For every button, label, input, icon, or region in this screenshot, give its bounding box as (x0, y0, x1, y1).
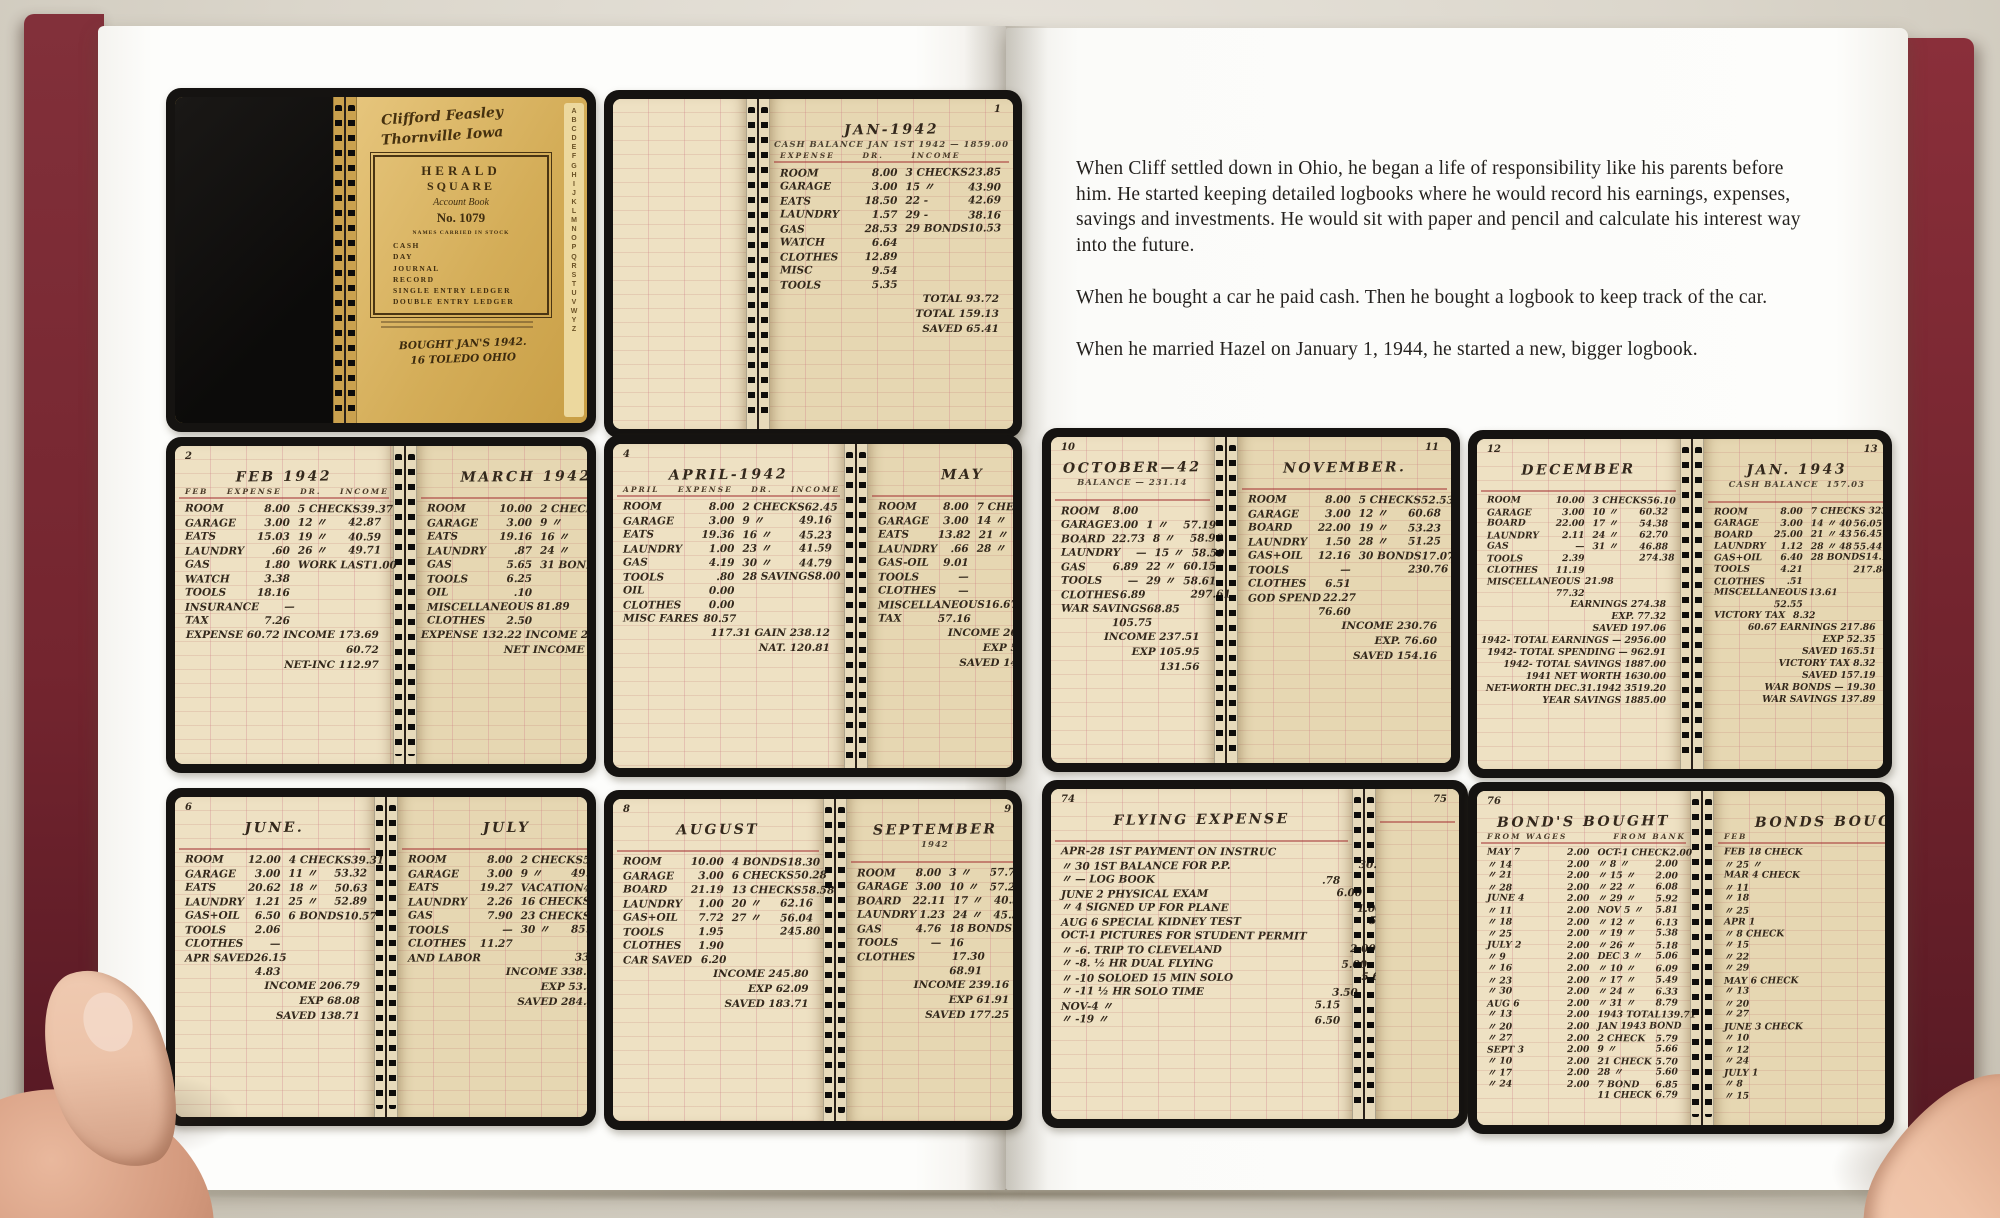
ledger-column-headers (1481, 480, 1676, 492)
ledger-cell-expense: — (938, 584, 969, 598)
ledger-cell-date (971, 612, 1013, 626)
ledger-title: MAY (872, 465, 1013, 486)
ledger-cell-expense: .10 (496, 586, 532, 600)
ledger-cell-label: VICTORY TAX (1708, 610, 1785, 622)
ledger-cell-income (989, 964, 1013, 978)
ledger-row: CLOTHES2.50 (421, 613, 587, 628)
ledger-row: ROOM8.003 〃57.72 (851, 865, 1013, 880)
ledger-cell-expense: 2.26 (477, 895, 513, 909)
ledger-cell-label (1241, 604, 1315, 618)
ledger-cell-expense: 2.00 (1555, 847, 1590, 859)
ledger-row: EATS19.27VACATION43.96 (402, 880, 587, 895)
ledger-cell-expense (1803, 1044, 1844, 1056)
ledger-row: 76.60 (1241, 604, 1447, 619)
ledger-row: GARAGE3.001 〃57.19 (1055, 518, 1210, 533)
ledger-cell-date: 20 〃 (724, 897, 780, 911)
ledger-page: 77BONDS BOUGHTFEB 6.95FEB 18 CHECK6.91〃 … (1714, 791, 1885, 1125)
ledger-row: CLOTHES0.00 (617, 597, 840, 612)
ledger-cell-expense: 6.51 (1315, 577, 1350, 591)
ledger-cell-date: 24 〃 (1584, 529, 1639, 541)
ledger-cell-label: TOOLS (774, 278, 858, 293)
ledger-cell-expense: 80.57 (698, 612, 736, 626)
page-number: 2 (185, 451, 192, 462)
ledger-row: EATS15.0319 〃40.59 (179, 529, 389, 544)
ledger-cell-label: LAUNDRY (872, 542, 938, 556)
ledger-row: BOARD25.0021 〃 4356.45 (1708, 529, 1883, 542)
ledger-cell-label: GAS+OIL (617, 910, 690, 924)
ledger-cell-expense: 3.00 (697, 514, 735, 528)
logbook-spread: 1JAN-1942CASH BALANCE JAN 1ST 1942 — 185… (613, 99, 1013, 429)
ledger-page: 10OCTOBER—42BALANCE — 231.14ROOM8.00GARA… (1051, 437, 1214, 763)
page-number: 11 (1425, 442, 1439, 453)
ledger-cell-expense: — (248, 937, 281, 951)
ledger-cell-date (1350, 563, 1407, 577)
ledger-row: BOARD22.0019 〃53.23 (1241, 520, 1447, 535)
ledger-cell-date: 23 〃 (734, 542, 796, 556)
ledger-cell-date (516, 951, 574, 965)
ledger-row: CLOTHES12.89 (774, 249, 1009, 264)
ledger-row: OIL0.00 (617, 583, 840, 598)
ledger-cell-expense: 2.11 (1551, 530, 1584, 542)
ledger-cell-date: 25 〃 (280, 895, 334, 909)
ledger-cell-expense: 6.64 (857, 236, 897, 250)
ledger-cell-expense (1803, 974, 1844, 986)
ledger-cell-expense: 9.01 (938, 556, 969, 570)
ledger-cell-income (1682, 1020, 1690, 1032)
ledger-cell-label: GARAGE (617, 869, 690, 883)
ledger-cell-date: OCT-1 CHECK (1589, 847, 1669, 859)
book-type-item: CASH (393, 240, 543, 251)
ledger-row: TOOLS2.39274.38 (1481, 552, 1676, 565)
ledger-title: JAN-1942 (774, 120, 1009, 141)
book-type-item: DAY (393, 251, 543, 262)
ledger-cell-label: TOOLS (872, 570, 938, 584)
ledger-cell-expense: 8.00 (1315, 493, 1350, 507)
ledger-cell-expense: 21.19 (689, 883, 723, 897)
book-type-list: CASHDAYJOURNALRECORDSINGLE ENTRY LEDGERD… (393, 240, 543, 308)
ledger-cell-date: 〃 19 〃 (1589, 928, 1646, 940)
ledger-cell-expense: 2.00 (1555, 998, 1590, 1010)
ledger-cell-date: 1 〃 (1138, 518, 1183, 532)
ledger-cell-income: 56.45 (1853, 529, 1883, 541)
ledger-cell-expense (1158, 999, 1208, 1013)
ledger-cell-expense: 25.00 (1773, 529, 1803, 541)
ledger-cell-expense: 4.76 (912, 922, 941, 936)
ledger-total-line: SAVED 165.51 (1708, 646, 1883, 658)
ledger-cell-income: 51.25 (1408, 534, 1449, 548)
ledger-cell-income: 8.79 (1647, 997, 1686, 1009)
ledger-cell-expense: .51 (1773, 576, 1803, 588)
ledger-cell-expense: 19.27 (477, 881, 513, 895)
ledger-cell-expense: 3.00 (912, 880, 941, 894)
ledger-cell-expense: 3.00 (1315, 507, 1350, 521)
ledger-row: 〃 162.00〃 10 〃6.09 (1481, 962, 1686, 975)
ledger-cell-expense: 3.00 (477, 867, 513, 881)
ledger-total-line: 131.56 (1055, 660, 1210, 675)
ledger-cell-expense: 3.00 (1773, 517, 1803, 529)
ledger-row: MAY 72.00OCT-1 CHECK2.00 (1481, 846, 1686, 859)
ledger-cell-expense: 3.00 (857, 180, 897, 194)
ledger-cell-date: 5 CHECKS (1350, 493, 1420, 507)
ledger-row: BOARD22.1117 〃40.53 (851, 893, 1013, 908)
spiral-binding-icon (746, 99, 770, 429)
ledger-cell-label: TOOLS (1708, 564, 1773, 576)
ledger-cell-label: GARAGE (402, 867, 477, 881)
illegible-fine-print (381, 321, 533, 323)
ledger-row: 〃 296.32 (1718, 962, 1885, 975)
ledger-cell-date: 10 〃 (941, 880, 990, 894)
ledger-cell-label: TOOLS (421, 572, 496, 586)
ledger-cell-date (1844, 1020, 1885, 1032)
ledger-cell-expense: 20.62 (248, 881, 281, 895)
ledger-cell-expense: 8.00 (1773, 506, 1803, 518)
ledger-cell-label: TOOLS (179, 923, 248, 937)
ledger-total-line: INCOME 239.16 (851, 978, 1013, 993)
ledger-cell-label: GARAGE (1708, 517, 1773, 529)
ledger-cell-date: 21 〃 (971, 528, 1013, 542)
ledger-cell-expense: 4.21 (1773, 564, 1803, 576)
ledger-cell-expense: 13.61 (1808, 587, 1838, 599)
ledger-cell-expense: 6.20 (692, 953, 726, 967)
ledger-cell-expense: 3.00 (938, 514, 969, 528)
ledger-cell-expense: 8.00 (477, 853, 513, 867)
ledger-title: JULY (402, 818, 587, 839)
illegible-fine-print (381, 326, 533, 328)
ledger-cell-date (1803, 575, 1854, 587)
ledger-cell-expense: 2.00 (1555, 870, 1590, 882)
ledger-row: EATS19.1616 〃63.35 (421, 529, 587, 544)
ledger-cell-label: 〃 16 (1481, 962, 1555, 974)
ledger-cell-expense: 11.27 (477, 937, 513, 951)
ledger-cell-income: 5.49 (1647, 974, 1686, 986)
ledger-cell-date (1584, 588, 1639, 600)
spiral-binding-icon (393, 446, 417, 764)
ledger-cell-label: MAY 7 (1481, 846, 1555, 858)
ledger-total-line: TOTAL 159.13 (774, 307, 1009, 322)
spiral-binding-icon (1680, 439, 1704, 769)
ledger-cell-expense: 2.00 (1555, 963, 1590, 975)
ledger-cell-label: JULY 2 (1481, 939, 1555, 951)
ledger-cell-date: 16 〃 (532, 530, 587, 544)
ledger-cell-date: 28 〃 (1350, 535, 1407, 549)
ledger-cell-label: BOARD (1481, 518, 1551, 530)
ledger-cell-date (1803, 564, 1854, 576)
ledger-cell-expense: 1.12 (1773, 541, 1803, 553)
ledger-page: 3MARCH 1942ROOM10.002 CHECKS55.70GARAGE3… (417, 446, 587, 764)
ledger-row: GOD SPEND22.27 (1241, 590, 1447, 605)
ledger-cell-label: TAX (872, 612, 938, 626)
ledger-cell-label: OIL (617, 583, 697, 597)
ledger-cell-expense: 8.00 (697, 500, 735, 514)
ledger-cell-expense: 22.73 (1112, 532, 1145, 546)
photo-ledger-jun-jul-1942: 6JUNE.ROOM12.004 CHECKS39.31GARAGE3.0011… (166, 788, 596, 1126)
ledger-cell-label (851, 964, 913, 978)
ledger-total-line: YEAR SAVINGS 1885.00 (1481, 695, 1676, 707)
ledger-cell-date: 2 CHECKS (513, 853, 583, 867)
ledger-cell-label: GAS (1481, 541, 1551, 553)
ledger-total-line: EXP 57.16 (872, 641, 1013, 656)
ledger-cell-expense: 8.00 (254, 502, 290, 516)
ledger-cell-label: LAUNDRY (1241, 535, 1315, 549)
ledger-cell-date (532, 586, 587, 600)
ledger-title: AUGUST (617, 820, 819, 841)
ledger-cell-date: 31 〃 (1584, 541, 1639, 553)
ledger-cell-expense (481, 951, 517, 965)
spiral-binding-icon (1352, 789, 1376, 1119)
ledger-cell-income: 5.66 (1647, 1043, 1686, 1055)
ledger-cell-expense: 2.00 (1555, 1079, 1590, 1091)
ledger-cell-label: MISC (774, 263, 858, 277)
ledger-row: ROOM8.007 CHECKS48.16 (872, 500, 1013, 515)
spiral-binding-icon (1690, 791, 1714, 1125)
ledger-row: TOOLS—230.76 (1241, 562, 1447, 577)
ledger-cell-expense: 8.00 (912, 866, 941, 880)
ledger-cell-label: APR-28 1ST PAYMENT ON INSTRUC (1055, 844, 1276, 859)
ledger-total-line: SAVED 144.89 (872, 656, 1013, 671)
ledger-cell-expense: 7.26 (254, 614, 290, 628)
ledger-cell-label: ROOM (1055, 504, 1112, 518)
ledger-cell-label: GARAGE (1241, 507, 1315, 521)
ledger-cell-income: 40.53 (994, 893, 1013, 907)
spiral-binding-icon (844, 444, 868, 768)
ledger-cell-expense: 1.00 (689, 897, 723, 911)
ledger-total-line: SAVED 284.84 (402, 995, 587, 1010)
ledger-cell-date: 11 〃 (280, 867, 334, 881)
ledger-cell-date: 13 CHECKS (724, 883, 802, 897)
ledger-cell-income: 274.38 (1639, 552, 1682, 564)
ledger-cell-expense: 26.15 (254, 951, 287, 965)
ledger-cell-expense: 6.40 (1773, 552, 1803, 564)
ledger-cell-date (1844, 997, 1885, 1009)
ledger-cell-date: 7 CHECKS (969, 500, 1013, 514)
ledger-row: LAUNDRY1.0020 〃62.16 (617, 896, 819, 911)
ledger-row: INSURANCE— (179, 599, 389, 614)
ledger-cell-label: ROOM (1708, 506, 1773, 518)
ledger-cell-date: 18 〃 (281, 881, 335, 895)
photo-ledger-apr-may-1942: 4APRIL-1942APRIL EXPENSE DR. INCOMEROOM8… (604, 435, 1022, 777)
ledger-cell-label: GOD SPEND (1241, 591, 1320, 605)
ledger-cell-date (1844, 870, 1885, 882)
ledger-cell-expense: 7.72 (689, 911, 723, 925)
ledger-row: GAS7.9023 CHECKS54.90 (402, 908, 587, 923)
ledger-cell-expense: .60 (254, 544, 290, 558)
photo-open-book: When Cliff settled down in Ohio, he bega… (0, 0, 2000, 1218)
ledger-title: FLYING EXPENSE (1055, 809, 1348, 831)
brand-name: HERALD (379, 163, 543, 179)
ledger-cell-income (348, 571, 389, 585)
ledger-cell-label: BOARD (1055, 532, 1112, 546)
photo-ledger-oct-nov-1942: 10OCTOBER—42BALANCE — 231.14ROOM8.00GARA… (1042, 428, 1460, 772)
ledger-cell-income: 2.00 (1647, 858, 1686, 870)
ledger-row: TOOLS6.25 (421, 571, 587, 586)
ledger-cell-label: SEPT 3 (1481, 1044, 1555, 1056)
ledger-cell-date (897, 264, 961, 278)
ledger-cell-expense: — (1315, 563, 1350, 577)
spiral-binding-icon (823, 799, 847, 1121)
ledger-cell-label: TAX (179, 613, 254, 627)
ledger-cell-expense: — (938, 570, 969, 584)
ledger-page: 6JUNE.ROOM12.004 CHECKS39.31GARAGE3.0011… (175, 797, 374, 1117)
ledger-cell-label: EATS (179, 881, 248, 895)
ledger-cell-label: ROOM (851, 866, 913, 880)
ledger-row: ROOM8.00 (1055, 504, 1210, 519)
ledger-cell-date: 〃 8 〃 (1589, 858, 1646, 870)
ledger-row: MISCELLANEOUS81.89 (421, 599, 587, 614)
ledger-cell-expense (1803, 1090, 1844, 1102)
ledger-cell-income: 6.79 (1652, 1090, 1686, 1102)
ledger-row: CLOTHES17.30 (851, 949, 1013, 964)
ledger-title: BOND'S BOUGHT (1481, 812, 1686, 833)
ledger-cell-label: 〃 13 (1481, 1009, 1555, 1021)
ledger-column-headers: EXPENSE DR. INCOME (774, 151, 1009, 163)
ledger-cell-date (1844, 951, 1885, 963)
ledger-cell-expense: 22.11 (912, 894, 945, 908)
ledger-cell-expense: 2.00 (1555, 1056, 1590, 1068)
ledger-row: CLOTHES— (872, 584, 1013, 599)
ledger-cell-label: OCT-1 PICTURES FOR STUDENT PERMIT (1055, 928, 1307, 943)
ledger-cell-label: 〃 10 (1718, 1032, 1803, 1044)
ledger-column-headers (402, 838, 587, 850)
ledger-cell-label: GARAGE (1055, 518, 1112, 532)
ledger-cell-label (179, 965, 248, 979)
ledger-column-headers (851, 851, 1013, 863)
ledger-cell-expense: 22.00 (1315, 521, 1350, 535)
ledger-cell-expense: 77.32 (1551, 588, 1584, 600)
ledger-title: DECEMBER (1481, 460, 1676, 481)
ledger-cell-label: GARAGE (179, 867, 248, 881)
ledger-total-line: EXP 105.95 (1055, 645, 1210, 660)
ledger-title: JAN. 1943 (1708, 460, 1883, 481)
ledger-row: CLOTHES— (179, 937, 370, 952)
ledger-row: 〃 158.10 (1718, 1090, 1885, 1103)
ledger-column-headers (179, 838, 370, 850)
ledger-total-line: SAVED 197.06 (1481, 623, 1676, 635)
ledger-cell-income: 43.96 (583, 881, 587, 895)
ledger-row: MISC FARES80.57 (617, 611, 840, 626)
ledger-cell-date (1844, 858, 1885, 870)
ledger-cell-expense: 12.00 (248, 853, 281, 867)
ledger-column-headers (1055, 830, 1348, 842)
ledger-row: AND LABOR338.73 (402, 950, 587, 965)
ledger-cell-label: GARAGE (774, 179, 858, 193)
ledger-total-line: EXP 53.89 (402, 980, 587, 995)
ledger-subtitle: CASH BALANCE JAN 1ST 1942 — 1859.00 (774, 140, 1009, 151)
ledger-cell-date: 16 (941, 936, 990, 950)
ledger-cell-expense (1208, 887, 1258, 901)
ledger-row: TOOLS18.16 (179, 585, 389, 600)
ledger-cell-label: ROOM (421, 501, 496, 515)
ledger-cell-date: 26 〃 (290, 544, 348, 558)
ledger-page: 74FLYING EXPENSEAPR-28 1ST PAYMENT ON IN… (1051, 789, 1352, 1119)
ledger-cell-expense: 2.00 (1555, 1044, 1590, 1056)
product-type: Account Book (379, 197, 543, 208)
ledger-cell-expense (1803, 928, 1844, 940)
ledger-cell-expense: 22.00 (1551, 518, 1584, 530)
ledger-column-headers (1380, 811, 1455, 823)
ledger-cell-expense (1803, 893, 1844, 905)
page-number: 10 (1061, 442, 1075, 453)
ledger-cell-date: 68.91 (941, 964, 990, 978)
ledger-cell-date: 16 CHECKS (513, 894, 587, 908)
ledger-column-headers: FROM WAGES FROM BANK (1481, 832, 1686, 844)
ledger-column-headers (1242, 478, 1448, 490)
ledger-cell-label: WAR SAVINGS (1055, 602, 1147, 616)
ledger-row: MISCELLANEOUS21.98 (1481, 576, 1676, 589)
ledger-title: OCTOBER—42 (1055, 458, 1210, 479)
ledger-cell-expense (1222, 943, 1272, 957)
ledger-cell-expense: 1.57 (857, 208, 897, 222)
ledger-row: TAX57.16 (872, 612, 1013, 627)
ledger-row: LAUNDRY1.0023 〃41.59 (617, 541, 840, 556)
ledger-row: VICTORY TAX8.32 (1708, 610, 1883, 623)
ledger-total-line: 1942- TOTAL SAVINGS 1887.00 (1481, 659, 1676, 671)
ledger-cell-expense: — (1551, 541, 1584, 553)
ledger-row: BOARD22.738 〃58.96 (1055, 532, 1210, 547)
ledger-cell-date: 9 〃 (734, 514, 796, 528)
ledger-cell-date (736, 612, 798, 626)
ledger-cell-label: 〃 27 (1718, 1009, 1803, 1021)
ledger-cell-expense: 3.00 (1551, 507, 1584, 519)
ledger-cell-label: 〃 -19 〃 (1055, 1012, 1158, 1027)
ledger-cell-expense: 4.19 (697, 556, 735, 570)
ledger-column-headers: FEB 6.95 (1718, 832, 1885, 844)
ledger-total-line: SAVED 183.71 (617, 997, 819, 1012)
ledger-cell-label: ROOM (1481, 494, 1551, 506)
page-number: 74 (1061, 794, 1075, 805)
ledger-cell-income: 14.14 (1866, 552, 1883, 564)
ledger-cell-label: 〃 4 SIGNED UP FOR PLANE (1055, 900, 1229, 915)
ledger-cell-expense: 2.00 (1555, 928, 1590, 940)
ledger-page: 5MAYROOM8.007 CHECKS48.16GARAGE3.0014 〃5… (868, 444, 1013, 768)
ledger-cell-income (798, 612, 840, 626)
brand-name-2: SQUARE (379, 179, 543, 194)
ledger-row: GAS4.1930 〃44.79 (617, 555, 840, 570)
ledger-row: 〃 186.53 (1718, 893, 1885, 906)
ledger-cell-label: TOOLS (402, 923, 477, 937)
ledger-cell-label: GAS (851, 922, 913, 936)
ledger-cell-label (1481, 1091, 1555, 1103)
ledger-cell-date (1258, 886, 1336, 900)
ledger-cell-label: FEB 18 CHECK (1718, 846, 1803, 858)
ledger-row: CLOTHES6.89297.61 (1055, 588, 1210, 603)
ledger-cell-expense (1803, 998, 1844, 1010)
ledger-total-line: 1942- TOTAL SPENDING — 962.91 (1481, 647, 1676, 659)
ledger-cell-expense: 15.03 (254, 530, 290, 544)
ledger-cell-expense (1803, 859, 1844, 871)
ledger-row: 〃 -19 〃6.50 (1055, 1012, 1348, 1028)
ledger-cell-expense: 81.89 (534, 600, 570, 614)
ledger-row: TOOLS1.95245.80 (617, 924, 819, 939)
ledger-cell-label: 〃 29 (1718, 962, 1803, 974)
ledger-row: GAS1.80WORK LAST1.00 (179, 557, 389, 572)
ledger-cell-income: 85.14 (571, 922, 587, 936)
ledger-row: 77.32 (1481, 587, 1676, 600)
ledger-cell-expense (1803, 963, 1844, 975)
ledger-cell-label: 〃 18 (1481, 916, 1555, 928)
ledger-cell-income: 62.70 (1639, 529, 1676, 541)
ledger-cell-label: CLOTHES (1241, 576, 1315, 590)
ledger-cell-date (724, 939, 780, 953)
ledger-cell-label: EATS (402, 880, 477, 894)
ledger-cell-label: CLOTHES (1055, 588, 1119, 602)
ledger-cell-label: CLOTHES (851, 950, 915, 964)
ledger-cell-label (1481, 587, 1551, 599)
ledger-cell-label: 〃 21 (1481, 870, 1555, 882)
ledger-row: 〃 126.69 (1718, 1043, 1885, 1056)
ledger-row: LAUNDRY1.2125 〃52.89 (179, 894, 370, 909)
ledger-row: GARAGE3.0012 〃60.68 (1241, 506, 1447, 521)
ledger-cell-expense (912, 964, 941, 978)
